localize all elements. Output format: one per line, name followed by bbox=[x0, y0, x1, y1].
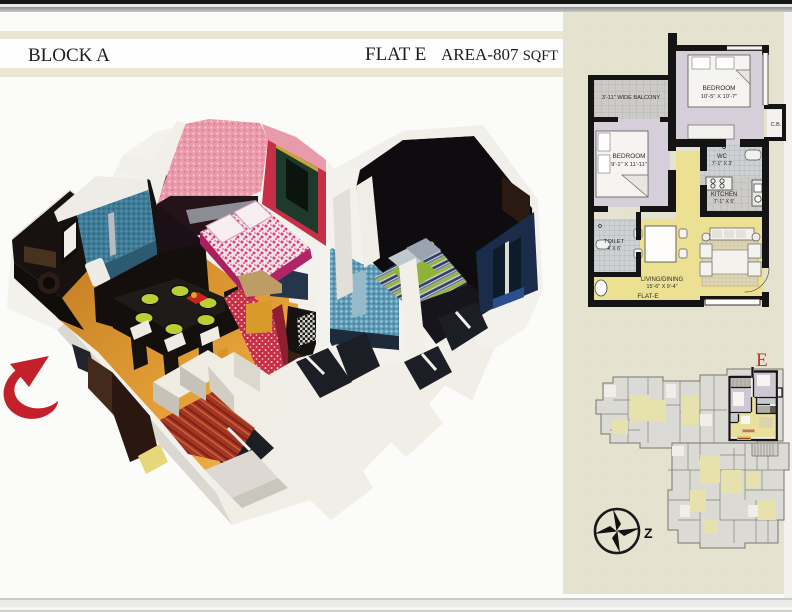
svg-text:KITCHEN: KITCHEN bbox=[711, 192, 737, 198]
svg-text:FLAT E: FLAT E bbox=[365, 44, 426, 65]
svg-text:BLOCK A: BLOCK A bbox=[28, 45, 110, 66]
svg-text:7'-1" X 5': 7'-1" X 5' bbox=[714, 199, 735, 205]
svg-text:BEDROOM: BEDROOM bbox=[702, 85, 735, 92]
svg-text:4' X 6': 4' X 6' bbox=[607, 246, 621, 252]
svg-text:9'-1" X 11'-11": 9'-1" X 11'-11" bbox=[611, 162, 647, 168]
svg-text:FLAT-E: FLAT-E bbox=[637, 293, 658, 300]
svg-text:E: E bbox=[756, 350, 768, 371]
svg-text:Z: Z bbox=[644, 525, 653, 541]
svg-text:C.B.: C.B. bbox=[771, 122, 781, 128]
svg-text:TOILET: TOILET bbox=[604, 239, 625, 245]
svg-text:LIVING/DINING: LIVING/DINING bbox=[641, 277, 684, 283]
svg-text:15'-6" X 9'-4": 15'-6" X 9'-4" bbox=[646, 284, 677, 290]
svg-text:WC: WC bbox=[717, 154, 728, 160]
svg-text:3'-11" WIDE BALCONY: 3'-11" WIDE BALCONY bbox=[602, 95, 661, 101]
svg-text:7'-1" X 3': 7'-1" X 3' bbox=[712, 161, 733, 167]
svg-text:10'-5" X 10'-7": 10'-5" X 10'-7" bbox=[701, 94, 738, 100]
svg-text:AREA-807 SQFT: AREA-807 SQFT bbox=[441, 45, 558, 64]
svg-text:BEDROOM: BEDROOM bbox=[612, 153, 645, 160]
